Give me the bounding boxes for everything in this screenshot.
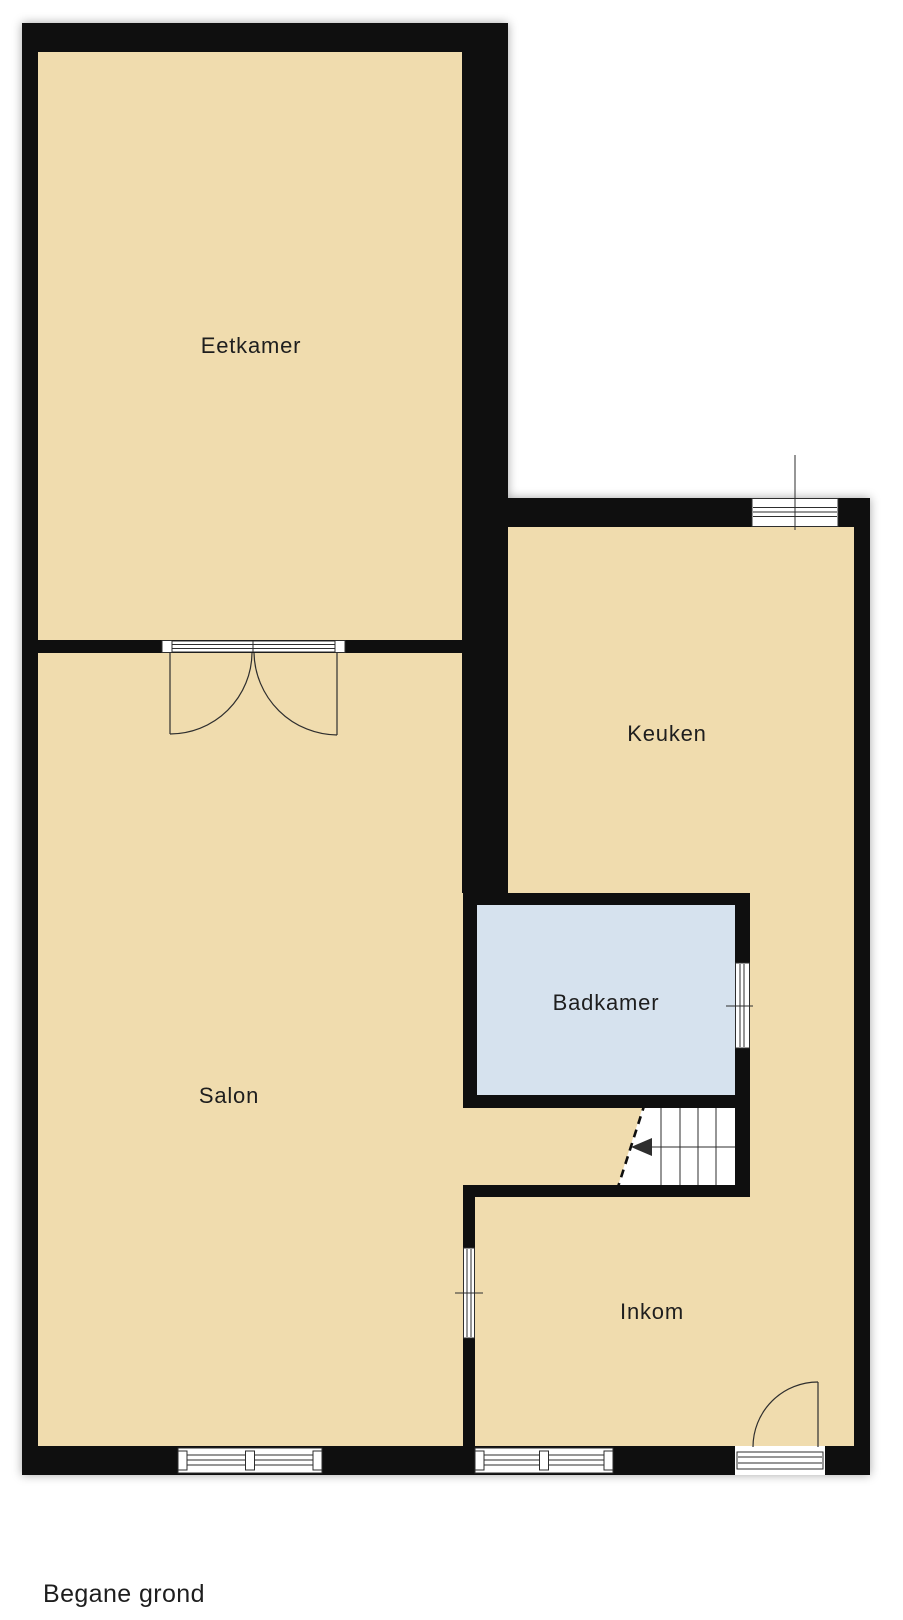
room-label-inkom: Inkom xyxy=(620,1299,684,1324)
room-floor-main xyxy=(30,40,862,1462)
room-label-badkamer: Badkamer xyxy=(553,990,660,1015)
wall-center-thick xyxy=(462,23,508,893)
wall-badkamer-top xyxy=(463,893,750,905)
wall-right xyxy=(854,498,870,1475)
inkom-window xyxy=(475,1448,613,1473)
wall-inkom-top xyxy=(463,1185,750,1197)
salon-window xyxy=(178,1448,322,1473)
floorplan-canvas: Eetkamer Keuken Badkamer Salon Inkom Beg… xyxy=(0,0,903,1620)
door-jamb-left xyxy=(162,641,172,653)
floorplan-page: Eetkamer Keuken Badkamer Salon Inkom Beg… xyxy=(0,0,903,1620)
room-label-keuken: Keuken xyxy=(627,721,706,746)
floors xyxy=(30,40,862,1462)
floor-title: Begane grond xyxy=(43,1580,205,1608)
keuken-window xyxy=(752,455,838,530)
door-jamb-right xyxy=(335,641,345,653)
wall-badkamer-bottom xyxy=(463,1095,750,1108)
room-label-salon: Salon xyxy=(199,1083,259,1108)
room-label-eetkamer: Eetkamer xyxy=(201,333,302,358)
wall-badkamer-left xyxy=(463,893,477,1108)
wall-left xyxy=(22,23,38,1475)
wall-top xyxy=(22,23,508,52)
